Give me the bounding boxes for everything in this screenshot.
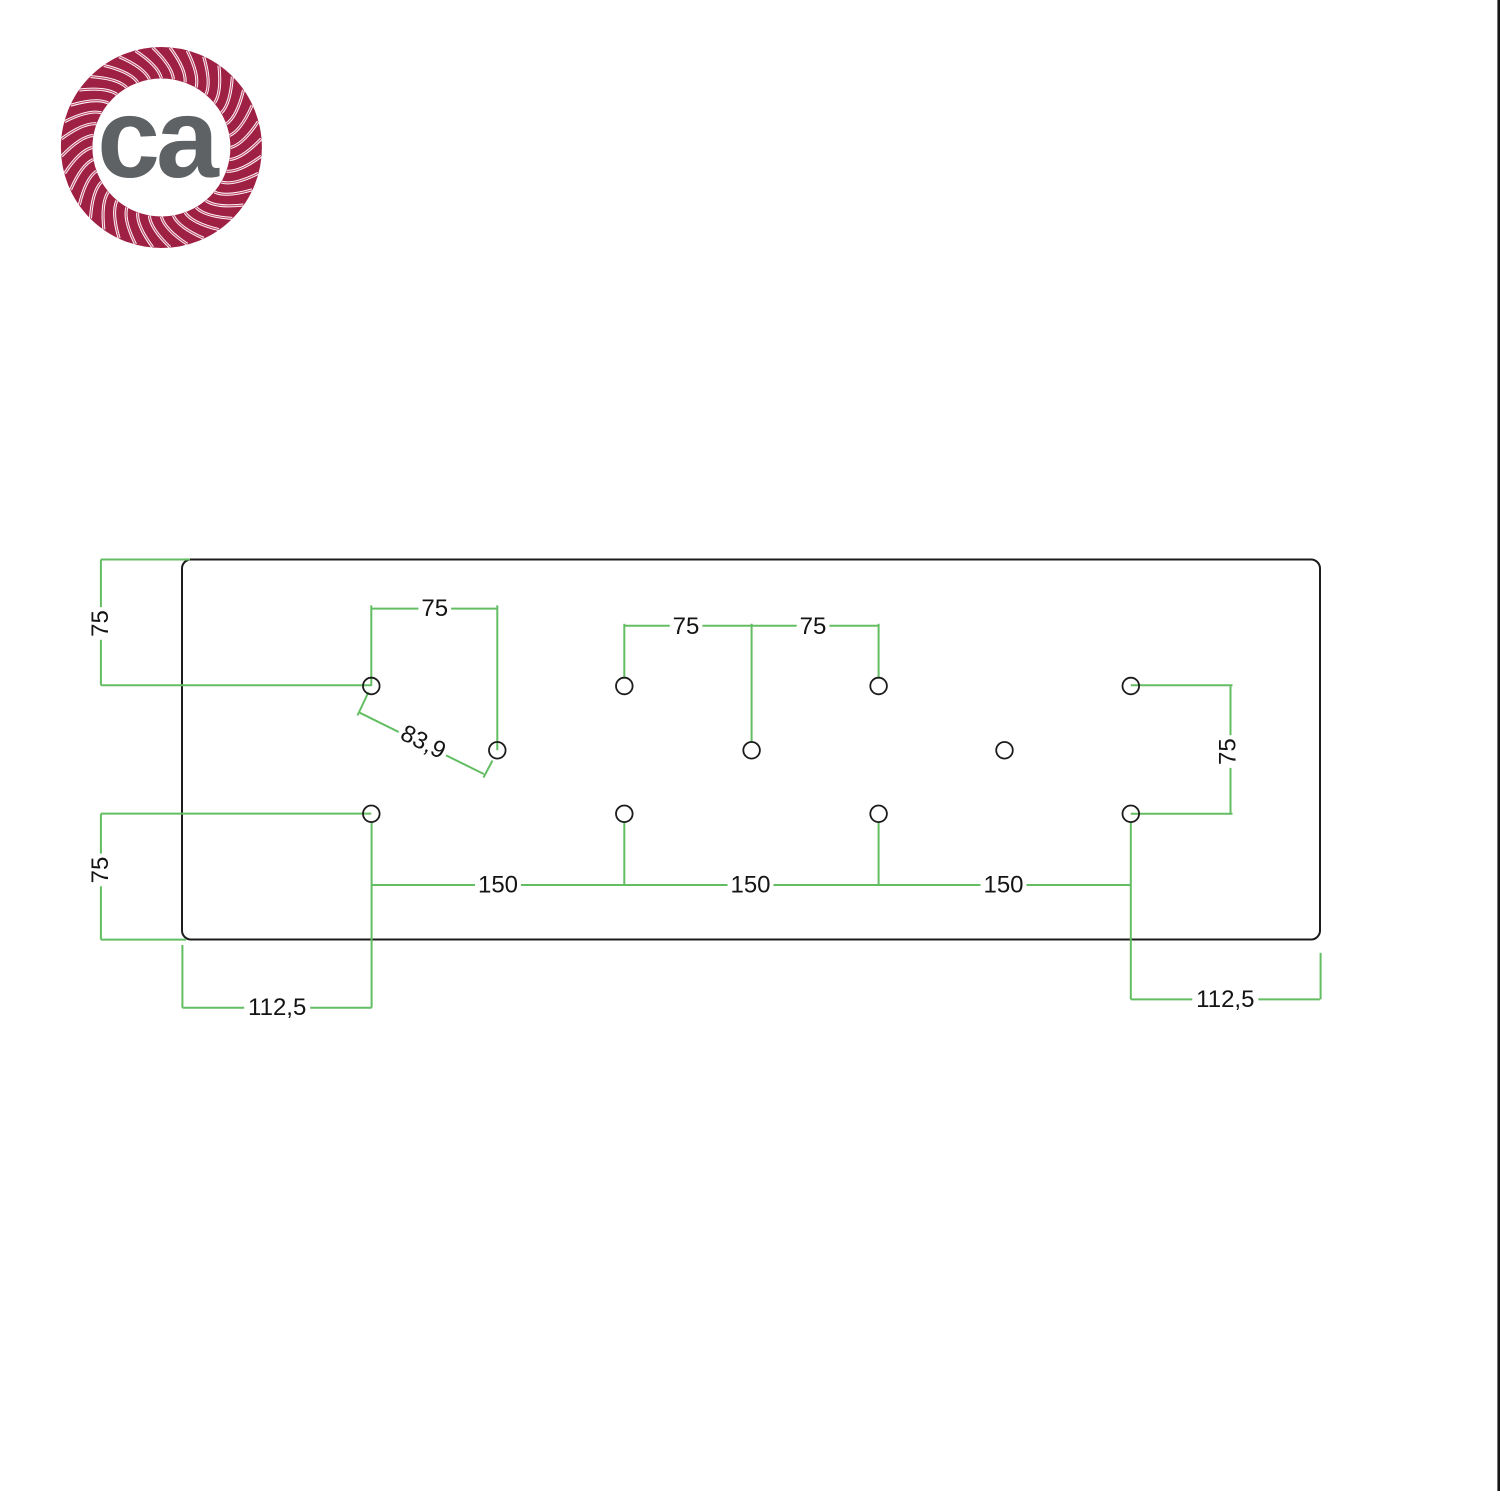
svg-text:150: 150 — [730, 872, 770, 899]
svg-text:150: 150 — [983, 872, 1023, 899]
svg-text:75: 75 — [87, 857, 114, 884]
svg-text:75: 75 — [421, 595, 448, 622]
svg-text:75: 75 — [87, 610, 114, 637]
svg-text:75: 75 — [1214, 738, 1241, 765]
svg-text:75: 75 — [800, 613, 827, 640]
svg-text:112,5: 112,5 — [1196, 986, 1254, 1013]
svg-text:150: 150 — [478, 872, 518, 899]
svg-text:75: 75 — [673, 613, 700, 640]
svg-text:ca: ca — [97, 75, 220, 201]
svg-text:112,5: 112,5 — [248, 994, 306, 1021]
